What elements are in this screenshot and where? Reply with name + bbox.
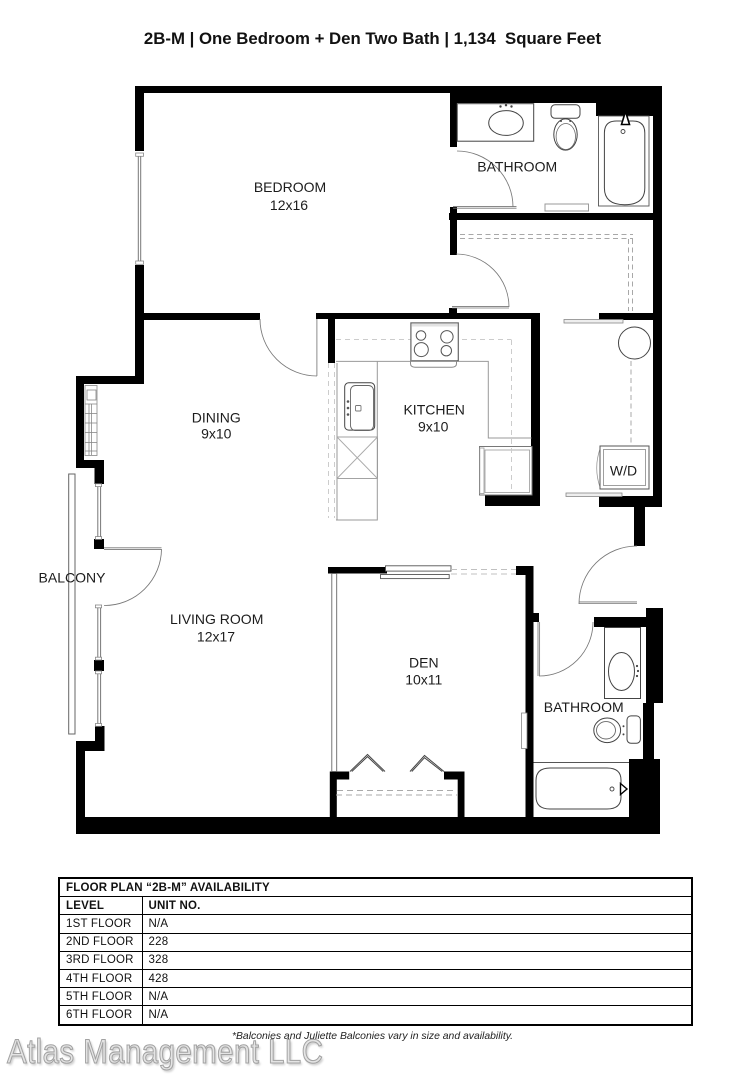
svg-text:BATHROOM: BATHROOM xyxy=(544,699,624,715)
svg-text:BATHROOM: BATHROOM xyxy=(477,158,557,174)
svg-text:12x17: 12x17 xyxy=(197,629,235,645)
svg-text:LIVING ROOM: LIVING ROOM xyxy=(170,611,263,627)
svg-text:BEDROOM: BEDROOM xyxy=(254,179,326,195)
svg-text:9x10: 9x10 xyxy=(418,419,449,435)
svg-text:9x10: 9x10 xyxy=(201,425,232,441)
svg-text:DINING: DINING xyxy=(192,409,241,425)
svg-text:10x11: 10x11 xyxy=(405,672,442,688)
svg-text:BALCONY: BALCONY xyxy=(39,569,107,585)
svg-text:12x16: 12x16 xyxy=(270,197,308,213)
svg-text:W/D: W/D xyxy=(610,463,637,479)
svg-text:DEN: DEN xyxy=(409,655,439,671)
svg-text:KITCHEN: KITCHEN xyxy=(403,402,464,418)
